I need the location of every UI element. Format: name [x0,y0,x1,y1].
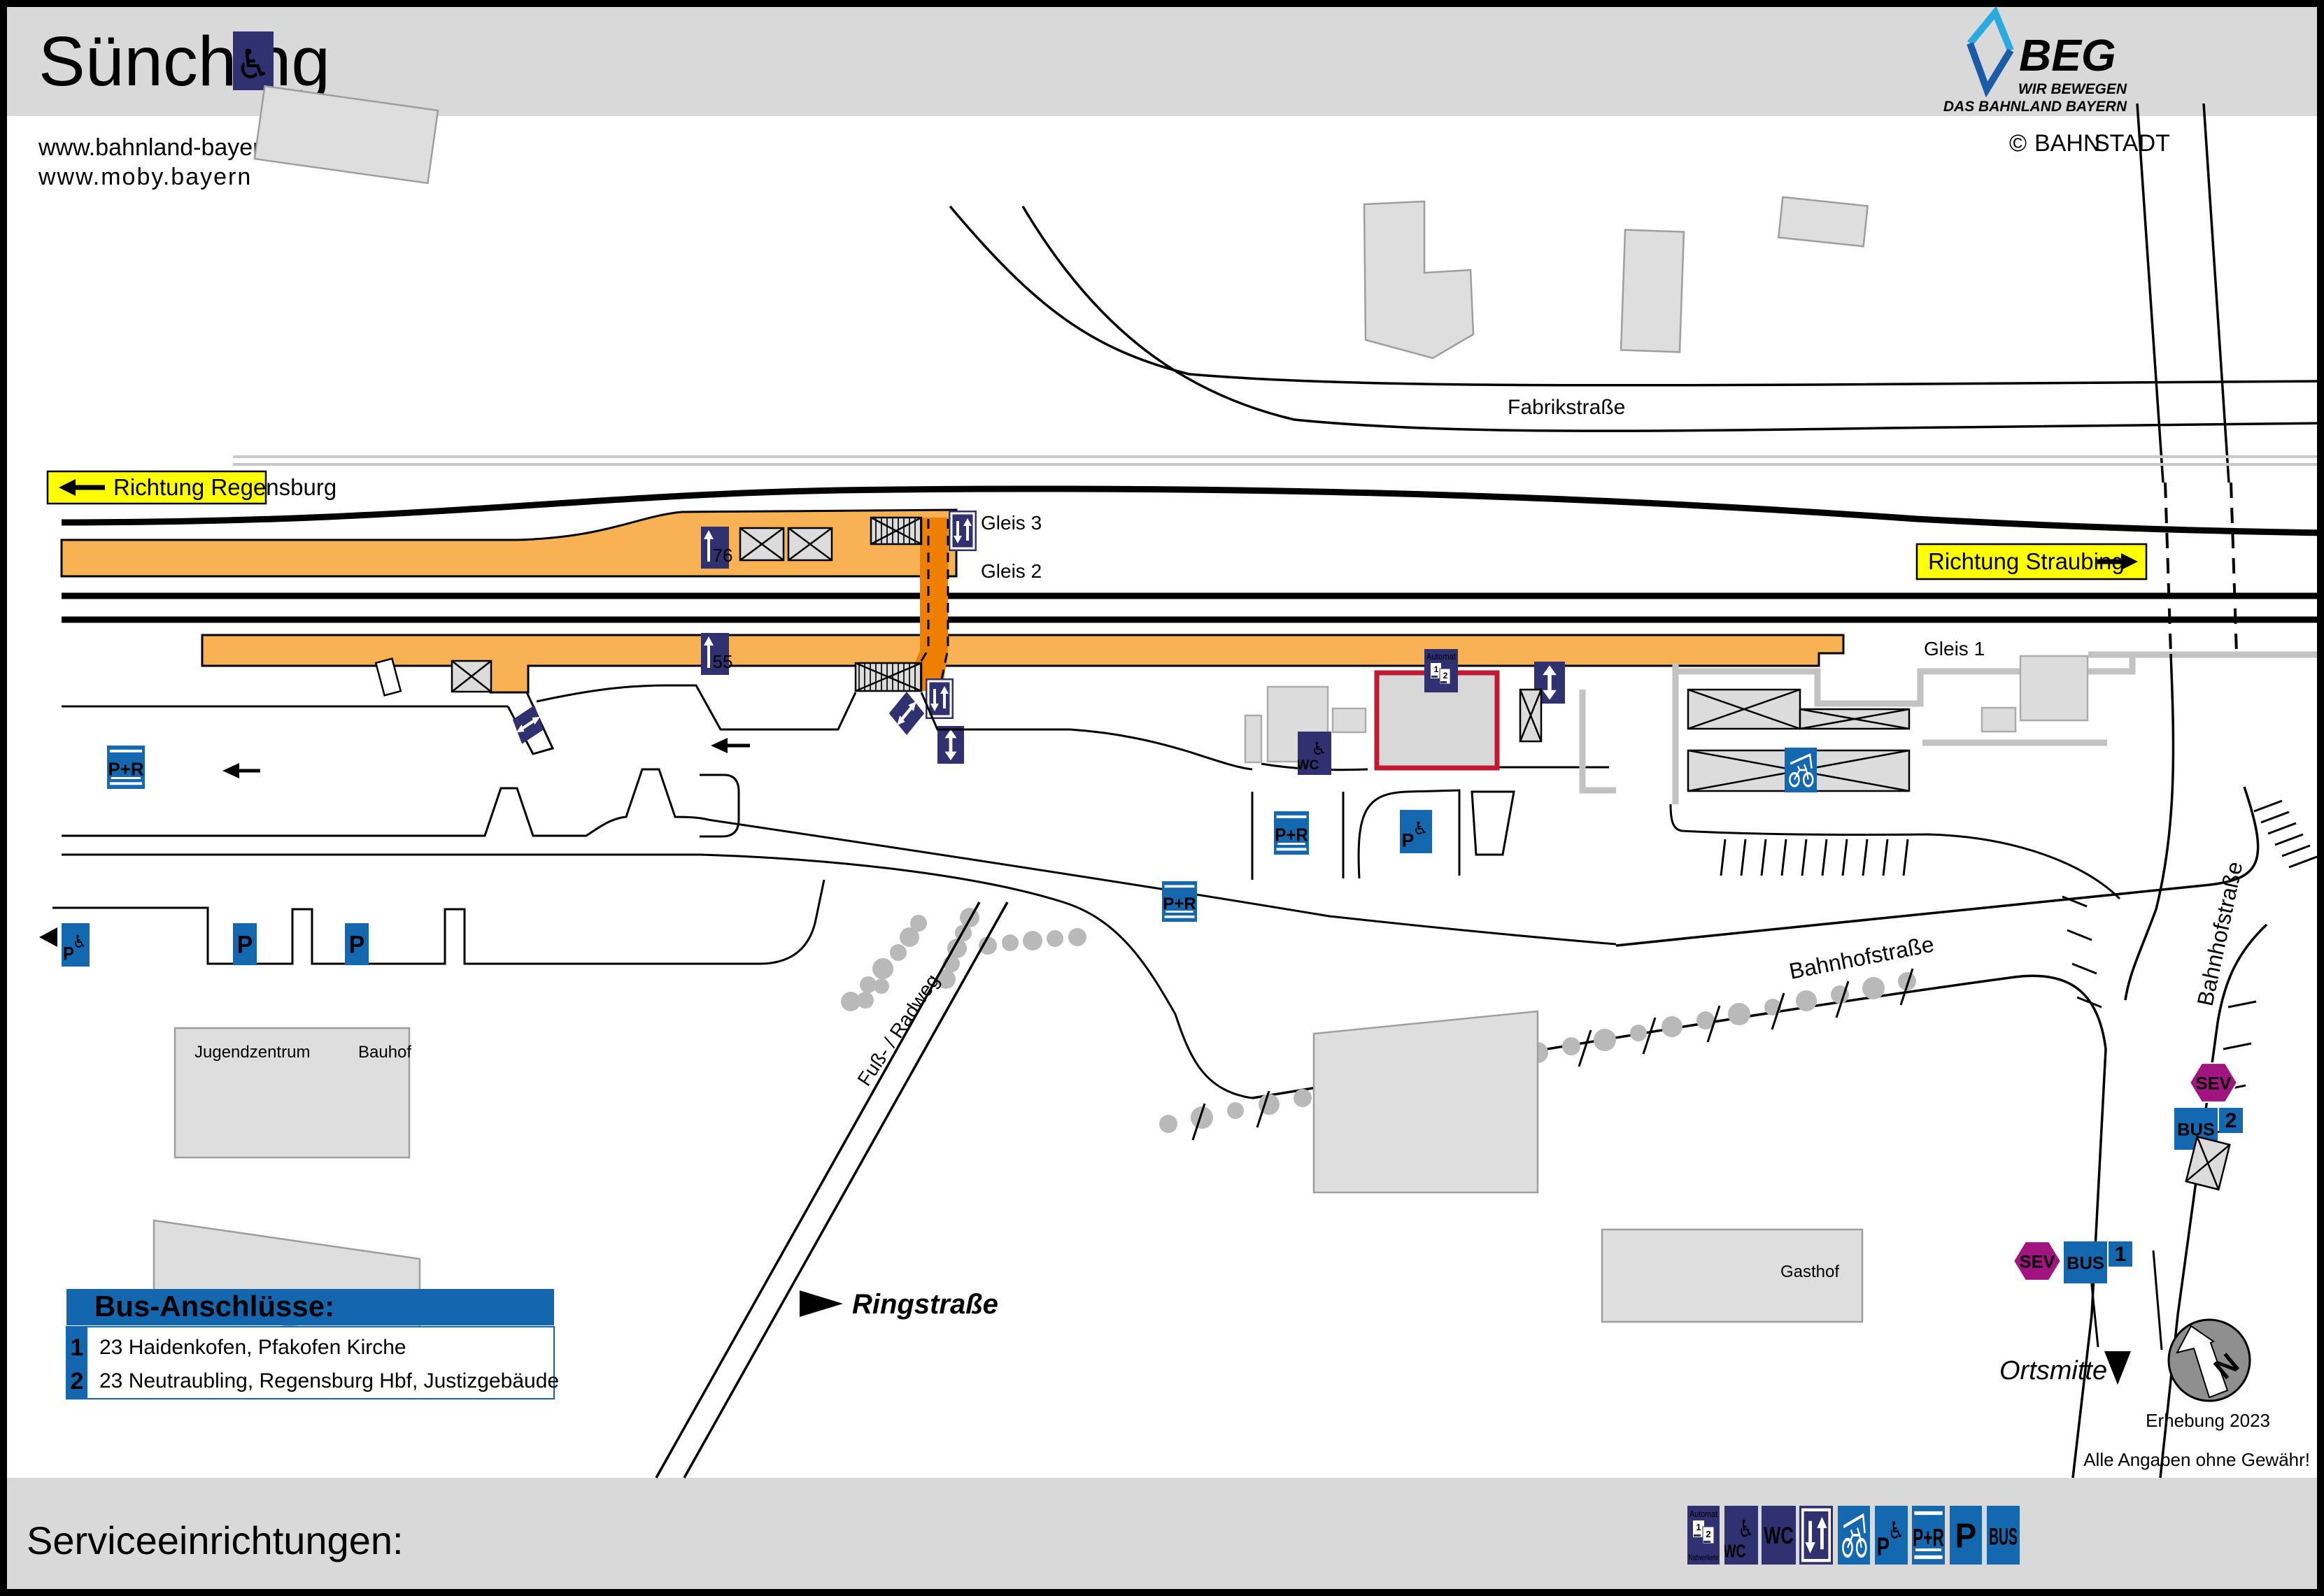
svg-text:55: 55 [713,651,733,672]
bus-legend-row-number: 1 [71,1334,84,1361]
label-gleis1: Gleis 1 [1924,638,1985,660]
park-and-ride-icon [1162,881,1197,922]
bus-legend-row-route: 23 Neutraubling, Regensburg Hbf, Justizg… [99,1369,559,1392]
street-label-fabrikstrasse: Fabrikstraße [1508,396,1625,419]
bus-icon [2064,1241,2107,1283]
stairs-sign-icon [949,511,977,551]
bus-legend-title: Bus-Anschlüsse: [94,1290,334,1323]
building [1778,197,1867,246]
footer-icon-stairs [1799,1506,1833,1565]
wheelchair-icon: ♿ [235,41,271,88]
credit-stadt: STADT [2094,130,2170,157]
svg-text:Nahverkehr: Nahverkehr [1689,1553,1719,1562]
bus-legend: Bus-Anschlüsse: 1 23 Haidenkofen, Pfakof… [66,1289,559,1399]
building [1333,708,1366,732]
credit-bahn: BAHN [2034,130,2100,157]
building [1245,715,1261,762]
bus-legend-row-route: 23 Haidenkofen, Pfakofen Kirche [99,1336,406,1359]
ramp-icon [937,726,964,764]
platform-height-55: 55 [701,633,732,675]
label-gleis2: Gleis 2 [981,560,1042,582]
footer-icon-automat: Automat 1 2 Nahverkehr [1687,1506,1720,1565]
bus-stop-number: 2 [2225,1109,2237,1132]
building [1982,708,2015,732]
bike-shelter-icon [1785,748,1817,792]
beg-name: BEG [2019,30,2116,80]
svg-text:Richtung Regensburg: Richtung Regensburg [113,474,336,500]
accessible-parking-icon [1400,810,1432,853]
copyright-symbol: © [2009,130,2027,157]
park-and-ride-icon [107,746,145,789]
footer-icon-bike-shelter [1838,1506,1870,1565]
label-jugendzentrum: Jugendzentrum [194,1043,310,1062]
park-and-ride-icon [1274,811,1309,855]
street-label-ringstrasse: Ringstraße [852,1289,998,1320]
accessible-station-icon: ♿ [233,31,274,90]
footer-icon-wc [1762,1506,1796,1565]
footer-icon-parking [1950,1506,1982,1565]
building [2020,656,2088,720]
parking-icon [233,923,257,965]
label-gasthof: Gasthof [1780,1262,1839,1281]
disclaimer-note: Alle Angaben ohne Gewähr! [2083,1449,2310,1470]
direction-regensburg: Richtung Regensburg [48,471,336,504]
svg-text:Richtung Straubing: Richtung Straubing [1928,548,2125,574]
svg-text:2: 2 [1706,1529,1710,1539]
label-gleis3: Gleis 3 [981,512,1042,534]
platform-height-76: 76 [701,527,732,569]
footer-title: Serviceeinrichtungen: [27,1518,404,1562]
accessible-wc-icon [1296,732,1331,775]
svg-text:Automat: Automat [1426,651,1456,662]
svg-text:76: 76 [713,545,733,566]
footer-icon-accessible-parking [1875,1506,1908,1565]
bus-stop-number: 1 [2115,1243,2127,1266]
svg-text:1: 1 [1696,1522,1701,1532]
svg-text:1: 1 [1434,664,1439,674]
building [1621,230,1684,352]
url-moby-bayern[interactable]: www.moby.bayern [38,164,252,190]
accessible-parking-icon [62,923,90,967]
direction-straubing: Richtung Straubing [1917,544,2146,579]
footer-icon-park-and-ride [1912,1506,1945,1565]
svg-text:2: 2 [1443,671,1448,681]
label-bauhof: Bauhof [358,1043,411,1062]
label-ortsmitte: Ortsmitte [1999,1356,2107,1385]
beg-tagline2: DAS BAHNLAND BAYERN [1943,99,2127,115]
survey-note: Erhebung 2023 [2146,1410,2270,1431]
svg-text:Automat: Automat [1689,1509,1717,1519]
footer-icons: Automat 1 2 Nahverkehr [1687,1506,2020,1565]
footer-icon-accessible-wc [1723,1506,1758,1565]
north-compass: N [2169,1320,2250,1401]
ticket-machine-sign: Automat 1 2 [1424,649,1458,692]
parking-icon [345,923,369,965]
beg-tagline1: WIR BEWEGEN [2018,81,2127,97]
station-map-canvas: P+R P P ♿ ♿ WC WC BUS SEV [0,0,2324,1596]
bus-legend-row-number: 2 [71,1368,84,1395]
footer-icon-bus [1987,1506,2020,1565]
building [1314,1011,1538,1192]
